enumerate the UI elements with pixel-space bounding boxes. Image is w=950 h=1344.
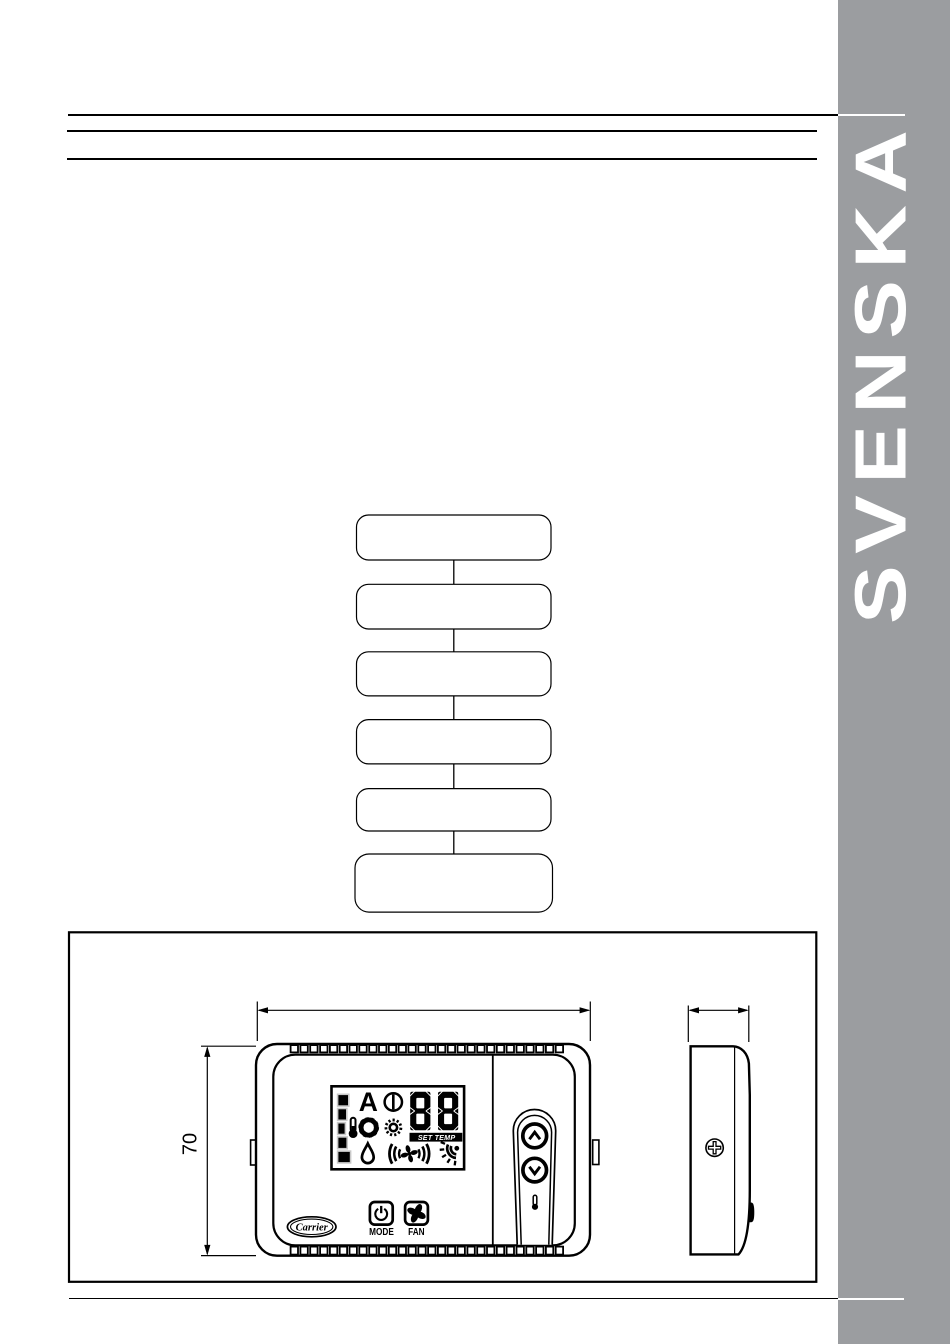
svg-text:A: A [359,1087,378,1117]
svg-text:MODE: MODE [369,1226,394,1237]
svg-text:70: 70 [180,1133,202,1155]
svg-text:SET TEMP: SET TEMP [418,1133,456,1142]
svg-text:Carrier: Carrier [296,1223,329,1234]
svg-text:FAN: FAN [408,1226,424,1237]
svg-text:SVENSKA: SVENSKA [841,119,922,624]
